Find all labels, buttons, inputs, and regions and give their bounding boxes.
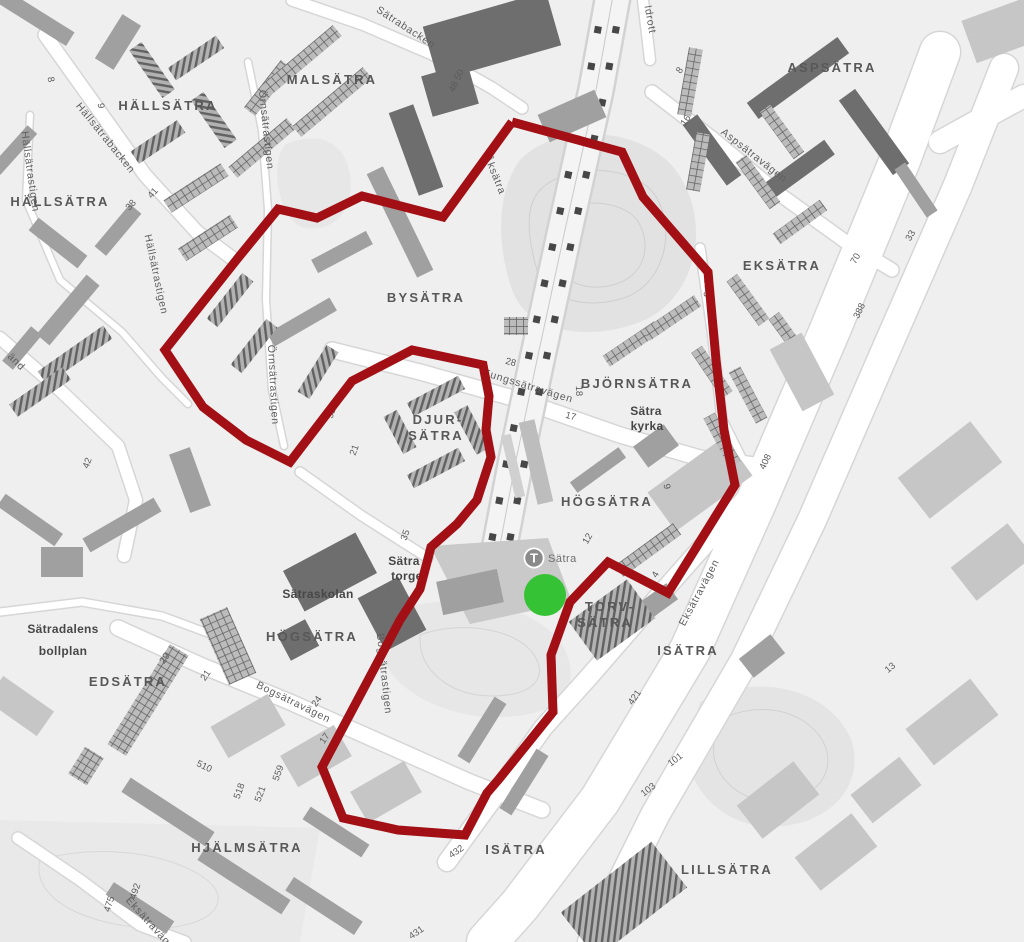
area-label: HJÄLMSÄTRA <box>191 840 303 855</box>
map-canvas[interactable]: HÄLLSÄTRAHÄLLSÄTRAMALSÄTRAASPSÄTRAEKSÄTR… <box>0 0 1024 942</box>
area-label: BYSÄTRA <box>387 290 465 305</box>
housenumber-label: 9 <box>95 103 106 109</box>
station-name-label: Sätra <box>548 553 577 565</box>
area-label: LILLSÄTRA <box>681 862 773 877</box>
place-label: bollplan <box>39 644 87 658</box>
area-label: SÄTRA <box>577 615 633 630</box>
area-label: BJÖRNSÄTRA <box>581 376 693 391</box>
location-marker[interactable] <box>524 574 566 616</box>
area-label: ISÄTRA <box>657 643 719 658</box>
place-label: kyrka <box>631 419 664 433</box>
place-label: Sätradalens <box>27 622 98 636</box>
area-label: MALSÄTRA <box>287 72 378 87</box>
place-label: Sätraskolan <box>282 587 353 601</box>
area-label: HÄLLSÄTRA <box>10 194 109 209</box>
area-label: SÄTRA <box>408 428 464 443</box>
area-label: HÄLLSÄTRA <box>118 98 217 113</box>
area-label: TORV- <box>585 599 635 614</box>
area-label: HÖGSÄTRA <box>561 494 653 509</box>
area-label: ISÄTRA <box>485 842 547 857</box>
housenumber-label: 18 <box>573 385 584 396</box>
area-label: ASPSÄTRA <box>787 60 876 75</box>
metro-t-glyph: T <box>530 551 538 566</box>
place-label: Sätra <box>630 404 662 418</box>
area-label: EKSÄTRA <box>743 258 821 273</box>
area-label: DJUR- <box>413 412 464 427</box>
place-label: Sätra <box>388 554 420 568</box>
building <box>504 317 528 335</box>
area-label: EDSÄTRA <box>89 674 167 689</box>
building <box>41 547 83 577</box>
area-label: HÖGSÄTRA <box>266 629 358 644</box>
